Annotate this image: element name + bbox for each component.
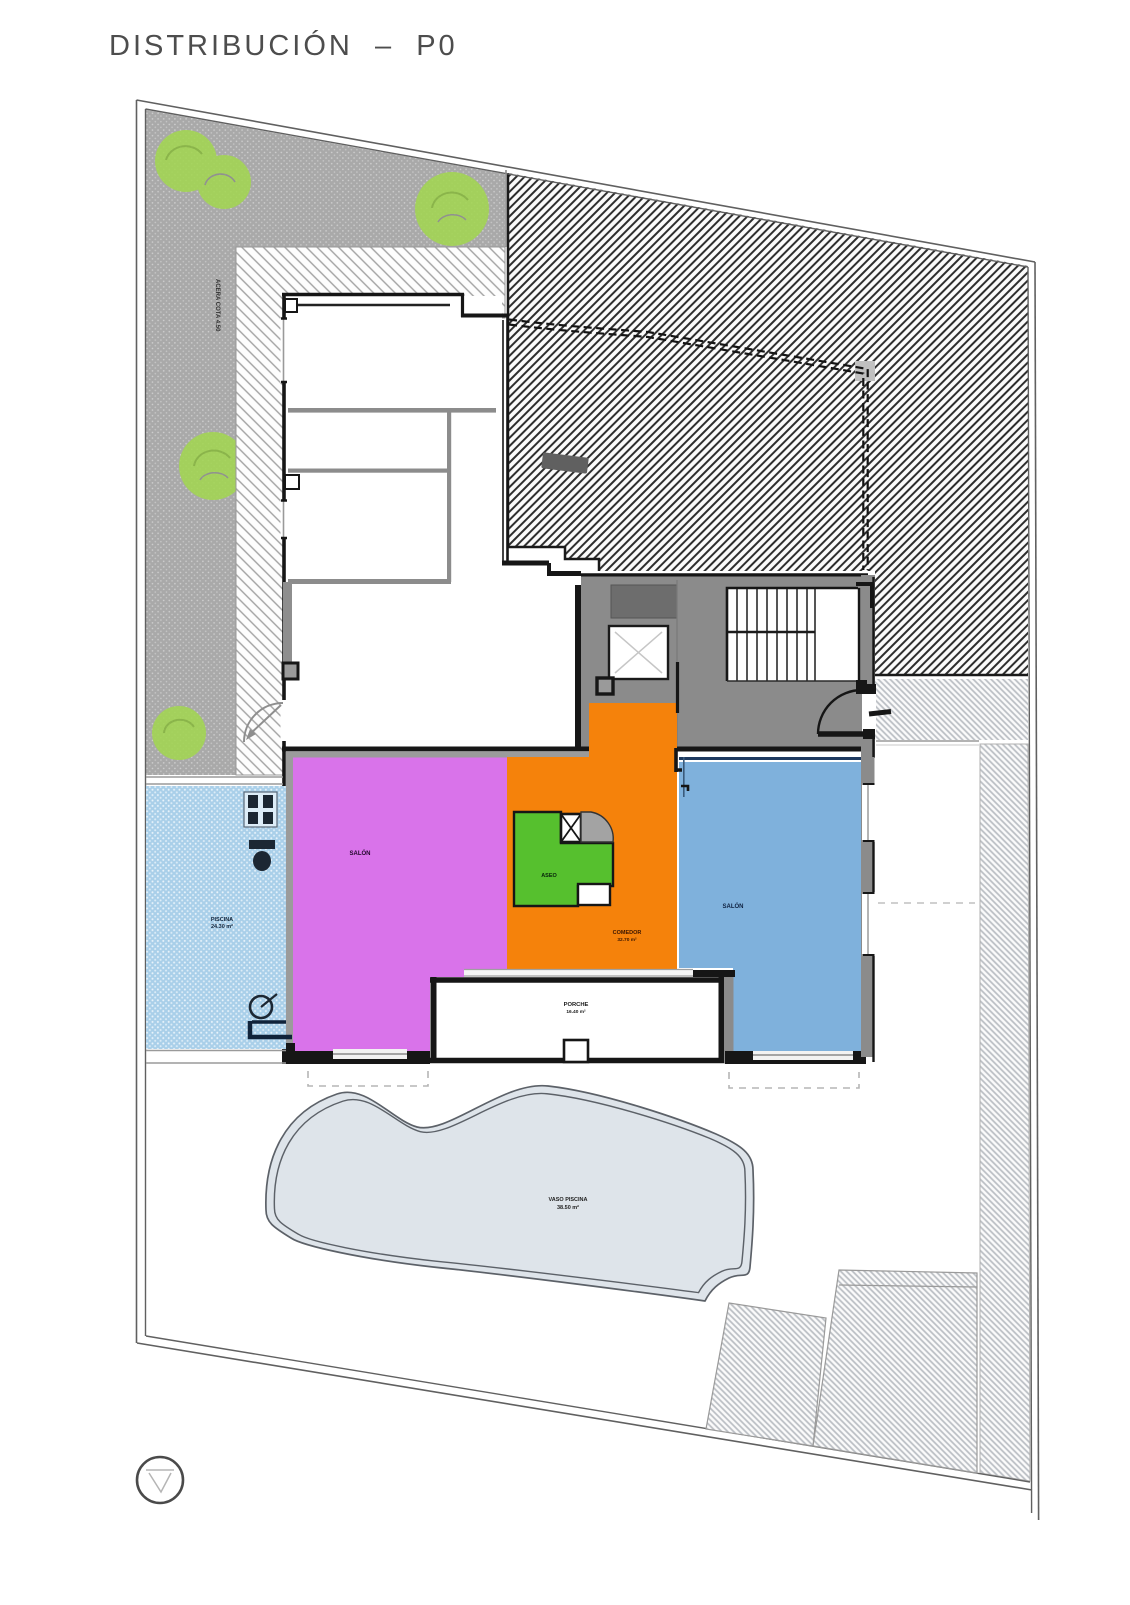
svg-text:VASO PISCINA: VASO PISCINA xyxy=(548,1197,587,1203)
svg-text:16.40 m²: 16.40 m² xyxy=(566,1009,586,1015)
svg-text:32.70 m²: 32.70 m² xyxy=(617,937,637,943)
svg-text:PORCHE: PORCHE xyxy=(564,1002,589,1008)
svg-text:SALÓN: SALÓN xyxy=(723,902,744,910)
svg-text:DISTRIBUCIÓN – P0: DISTRIBUCIÓN – P0 xyxy=(109,29,458,62)
svg-text:COMEDOR: COMEDOR xyxy=(613,930,642,936)
svg-text:ACERA COTA 4.50: ACERA COTA 4.50 xyxy=(214,279,220,332)
svg-text:SALÓN: SALÓN xyxy=(350,849,371,857)
svg-text:ASEO: ASEO xyxy=(541,873,557,879)
svg-text:PISCINA: PISCINA xyxy=(211,917,233,923)
svg-text:38.50 m²: 38.50 m² xyxy=(557,1204,579,1211)
svg-text:24.30 m²: 24.30 m² xyxy=(211,923,233,930)
